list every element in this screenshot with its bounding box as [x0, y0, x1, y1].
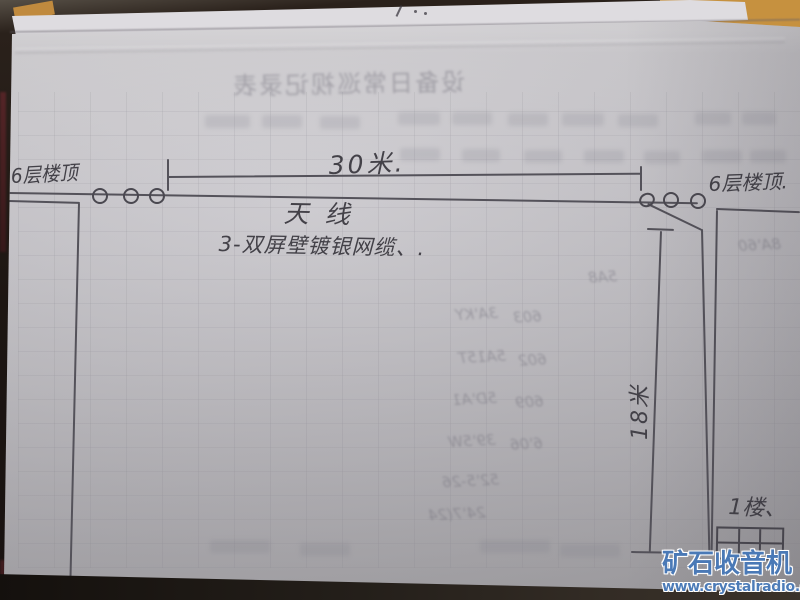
bleed-blob — [584, 150, 624, 163]
bleed-mark: 5A8 — [588, 267, 618, 287]
insulator-circle — [690, 193, 706, 209]
first-floor-label: 1楼、 — [728, 489, 787, 523]
bleed-blob — [398, 112, 440, 125]
bleed-blob — [508, 113, 548, 126]
bleed-mark: 602 — [518, 350, 548, 369]
bleed-blob — [205, 115, 250, 128]
bleed-blob — [742, 112, 776, 125]
bleed-mark: 609 — [515, 392, 545, 411]
bleed-blob — [452, 112, 492, 125]
watermark-site-name: 矿石收音机 — [662, 551, 800, 577]
span-dimension-tick-left — [167, 159, 169, 191]
stray-pen-dot — [424, 12, 427, 15]
insulator-circle — [123, 188, 139, 204]
bleed-blob — [702, 150, 742, 163]
bleed-blob — [300, 543, 350, 556]
antenna-label: 天线 — [283, 194, 366, 231]
bleed-mark: 6'06 — [510, 434, 544, 454]
bleed-blob — [644, 151, 680, 164]
bleed-blob — [400, 148, 440, 161]
bleed-through-mirrored-title: 设备日常巡视记录表 — [250, 62, 466, 101]
insulator-circle — [149, 188, 165, 204]
bleed-blob — [695, 112, 731, 125]
bleed-mark: 603 — [513, 307, 543, 326]
cable-type-label: 3-双屏壁镀银网缆、. — [218, 228, 425, 262]
bleed-mark: 8A'60 — [738, 235, 782, 255]
span-dimension-tick-right — [640, 166, 642, 191]
stray-pen-dot — [414, 10, 417, 13]
span-dimension-label: 30米. — [328, 143, 406, 182]
bleed-blob — [462, 149, 500, 162]
paper-crease — [15, 37, 785, 54]
left-rooftop-label: 6层楼顶 — [10, 156, 78, 188]
red-paper-edge — [0, 92, 6, 252]
bleed-blob — [480, 540, 550, 553]
bleed-mark: 24'7(24 — [428, 504, 487, 525]
bleed-mark: 52'5-26 — [442, 471, 500, 492]
bleed-blob — [524, 150, 562, 163]
bleed-mark: 3A'KY — [455, 304, 499, 324]
bleed-blob — [210, 540, 270, 553]
bleed-mark: 5D'A1 — [452, 389, 498, 409]
insulator-circle — [92, 188, 108, 204]
paper-sheet: 设备日常巡视记录表 3A'KY6035A15T6025D'A160939'5W6… — [0, 0, 800, 600]
bleed-blob — [562, 113, 604, 126]
height-dimension-label: 18米 — [622, 378, 654, 446]
watermark-site-url: www.crystalradio.cn — [662, 580, 800, 594]
bleed-blob — [618, 114, 658, 127]
insulator-circle — [663, 192, 679, 208]
right-rooftop-label: 6层楼顶. — [708, 165, 788, 197]
bleed-through-table-grid — [18, 92, 800, 568]
watermark: 矿石收音机 www.crystalradio.cn — [662, 551, 800, 594]
photo-of-hand-drawn-antenna-diagram: 设备日常巡视记录表 3A'KY6035A15T6025D'A160939'5W6… — [0, 0, 800, 600]
bleed-blob — [320, 116, 360, 129]
bleed-mark: 5A15T — [458, 347, 507, 367]
bleed-blob — [750, 150, 786, 163]
bleed-blob — [560, 544, 620, 557]
bleed-blob — [262, 115, 302, 128]
bleed-mark: 39'5W — [448, 431, 496, 451]
